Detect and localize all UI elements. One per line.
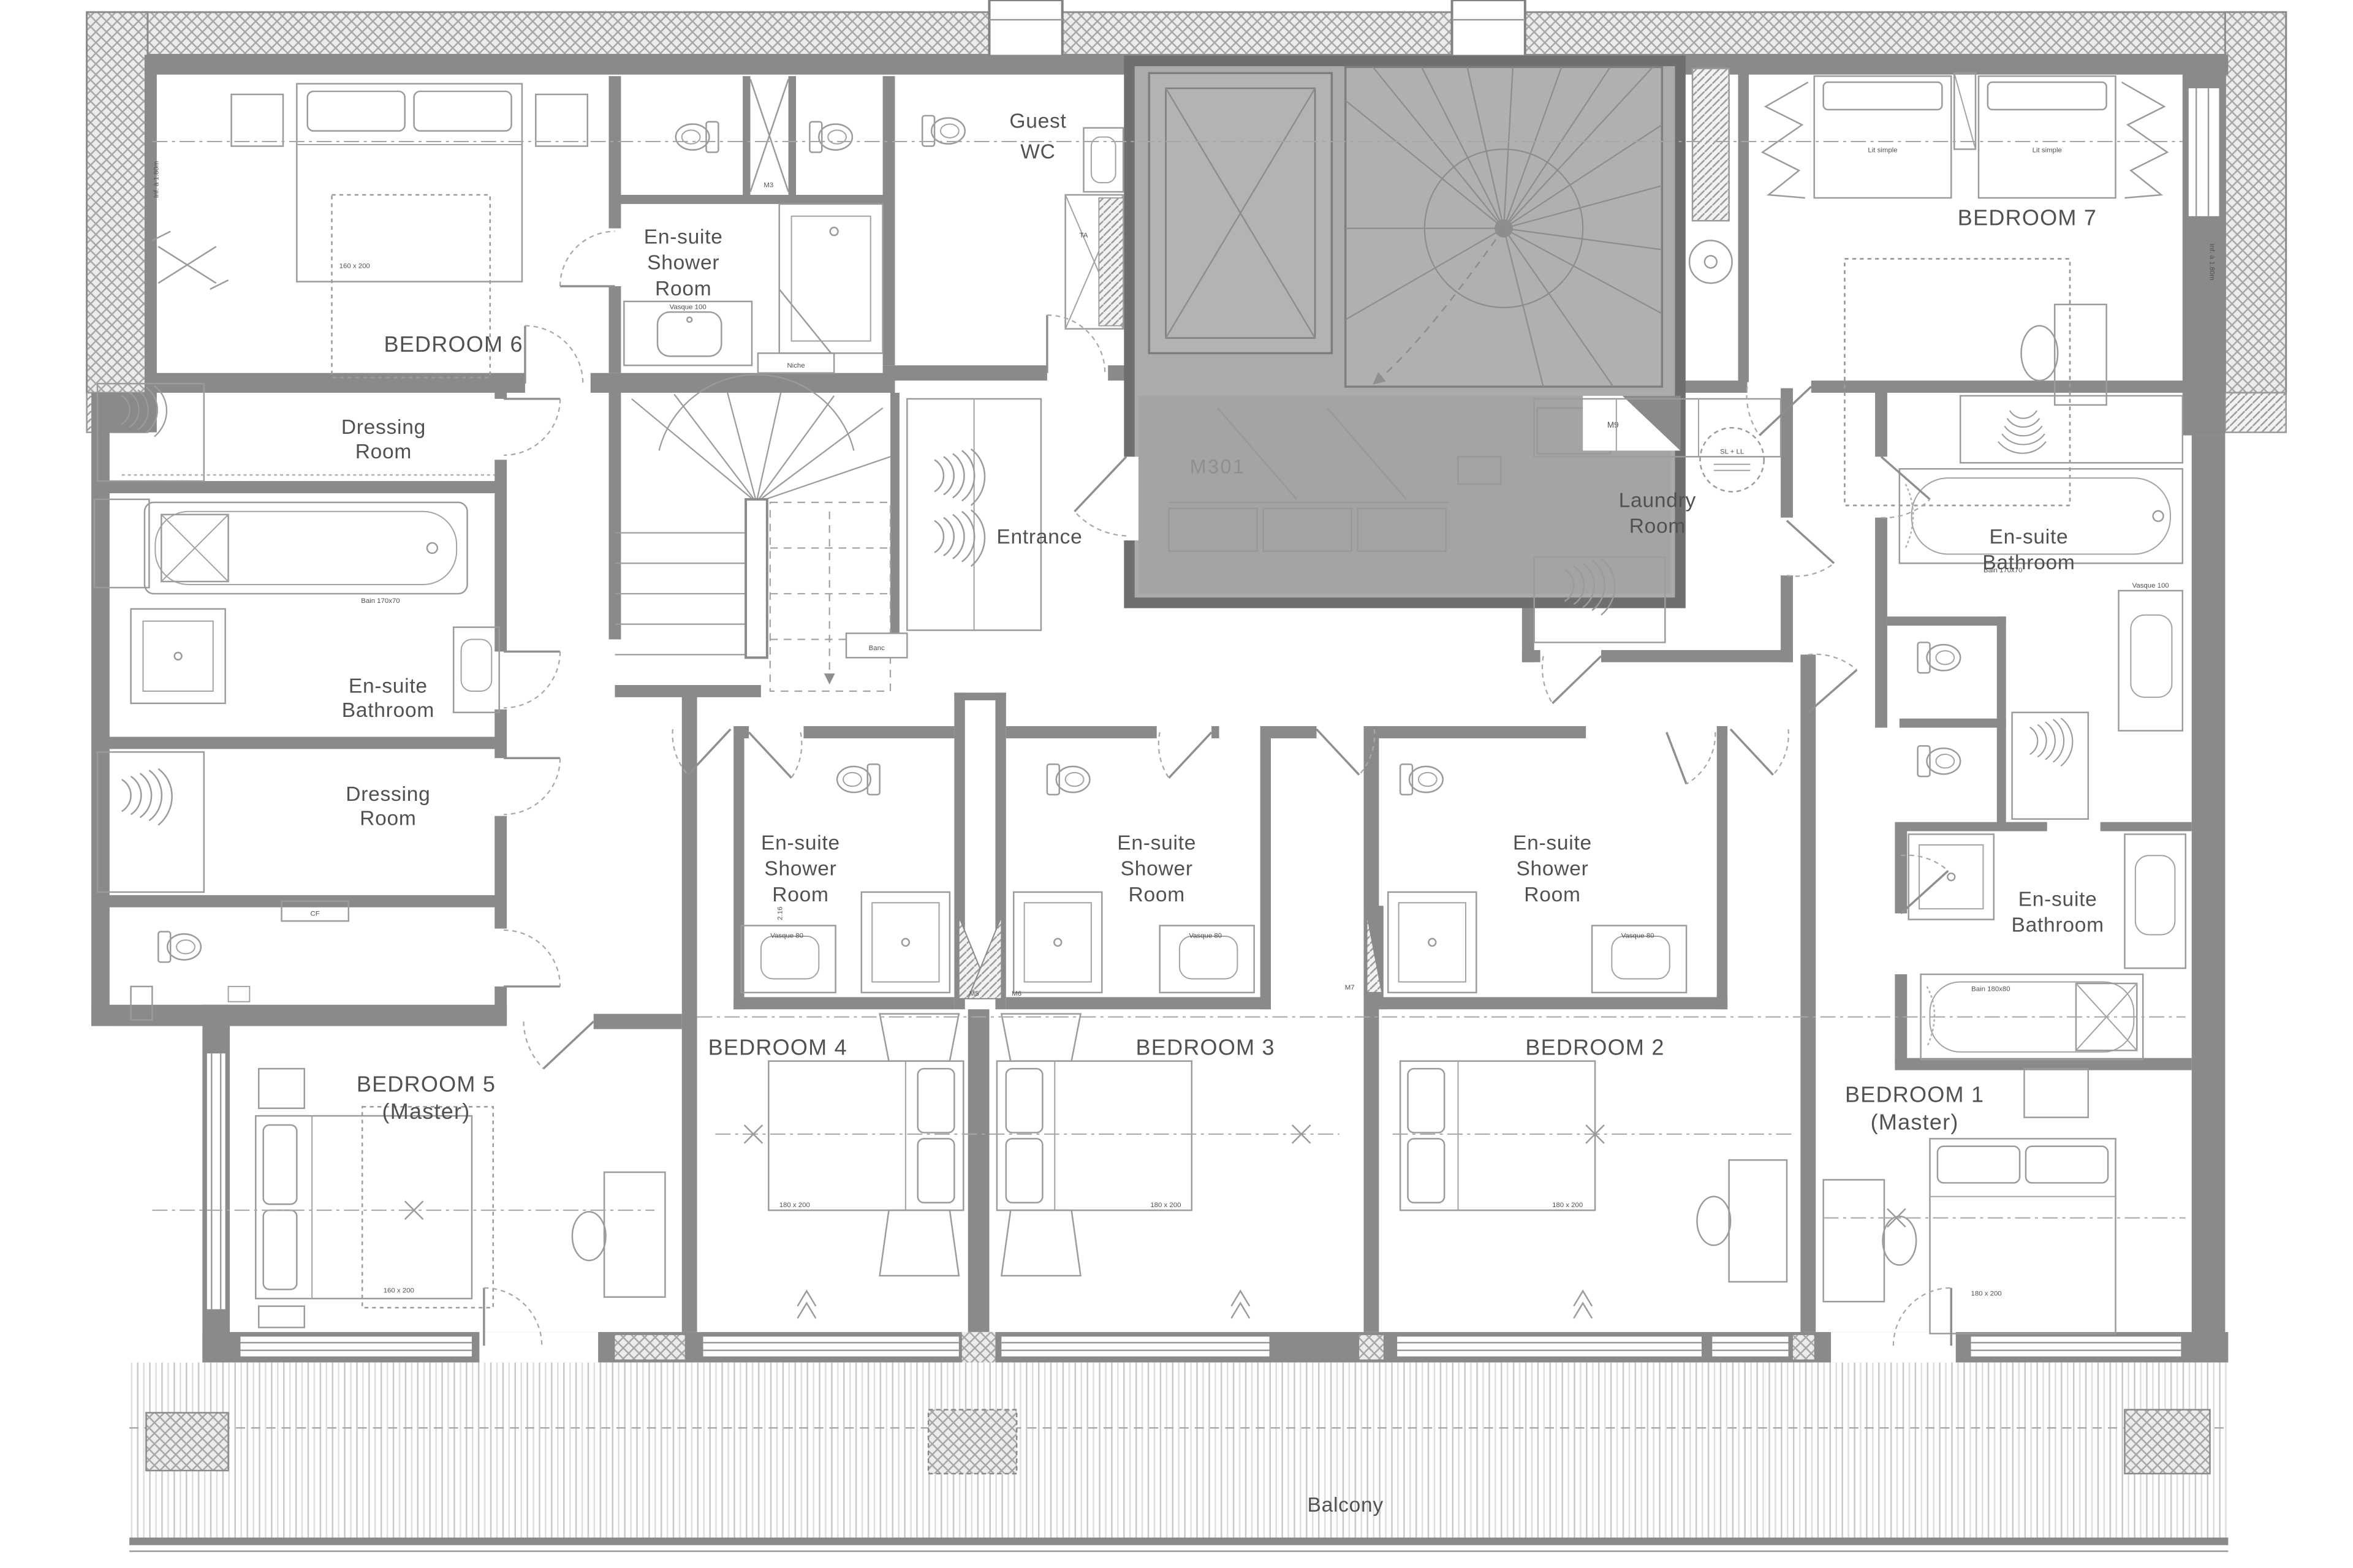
- lit-simple-right: Lit simple: [2033, 146, 2062, 154]
- label-shower3-3: Room: [1129, 884, 1185, 906]
- washer-dryer-label: SL + LL: [1720, 448, 1744, 455]
- pier-hatch: [615, 1335, 684, 1360]
- niche-label: Niche: [787, 362, 805, 369]
- label-bath7-1: En-suite: [1989, 526, 2068, 548]
- label-bedroom2: BEDROOM 2: [1525, 1035, 1664, 1060]
- floor-plan-page: M301 M9: [0, 0, 2353, 1568]
- m7-label: M7: [1345, 984, 1355, 991]
- roof-hatch-right: [2225, 12, 2286, 393]
- vasque80-label-3: Vasque 80: [1621, 932, 1654, 939]
- label-shower4-2: Shower: [764, 858, 836, 881]
- label-bedroom6: BEDROOM 6: [384, 331, 523, 357]
- bed4-size: 180 x 200: [779, 1202, 810, 1209]
- label-guestwc-2: WC: [1020, 140, 1055, 163]
- bedroom1-furniture: 180 x 200: [1824, 1069, 2186, 1333]
- balcony-post-hatch: [928, 1410, 1017, 1474]
- label-dressing6-1: Dressing: [341, 416, 426, 439]
- bain180-label: Bain 180x80: [1971, 985, 2010, 993]
- label-shower4-3: Room: [772, 884, 828, 906]
- label-entrance: Entrance: [996, 526, 1082, 548]
- bed5-size: 160 x 200: [384, 1287, 414, 1294]
- roof-hatch-top: [87, 12, 2286, 55]
- bath1-fixtures: Bain 180x80: [1909, 834, 2186, 1059]
- label-dressing5-2: Room: [360, 808, 416, 830]
- bedroom7-furniture: Lit simple Lit simple: [1762, 73, 2167, 506]
- balcony-deck: [129, 1363, 2228, 1542]
- balcony-railing: [129, 1537, 2228, 1545]
- pier-hatch: [1793, 1335, 1814, 1360]
- label-bedroom7: BEDROOM 7: [1958, 205, 2097, 230]
- vasque100-label: Vasque 100: [670, 303, 707, 311]
- bench-label: Banc: [869, 645, 885, 652]
- window-arrows: [798, 1291, 1593, 1319]
- label-shower2-2: Shower: [1516, 858, 1588, 881]
- lit-simple-left: Lit simple: [1868, 146, 1897, 154]
- label-shower2-1: En-suite: [1513, 831, 1592, 854]
- vasque100-label-2: Vasque 100: [2132, 582, 2169, 589]
- balcony-post-hatch: [2124, 1410, 2210, 1474]
- label-laundry-1: Laundry: [1619, 489, 1696, 512]
- elevator: [1149, 73, 1332, 353]
- label-balcony: Balcony: [1307, 1494, 1383, 1517]
- label-bath56-1: En-suite: [349, 675, 428, 697]
- label-shower6-1: En-suite: [644, 226, 723, 249]
- label-bedroom1-2: (Master): [1871, 1109, 1959, 1134]
- label-dressing5-1: Dressing: [346, 783, 430, 806]
- label-dressing6-2: Room: [355, 441, 412, 463]
- bed3-size: 180 x 200: [1150, 1202, 1181, 1209]
- coat-closet: [907, 399, 1041, 631]
- m5-label: M5: [969, 990, 979, 998]
- cf-label: CF: [311, 910, 320, 917]
- balcony-post-hatch: [146, 1413, 228, 1471]
- eave-step-right: [2225, 393, 2286, 433]
- pier-hatch-center: [962, 1332, 996, 1363]
- label-shower6-3: Room: [655, 278, 711, 300]
- bed1-size: 180 x 200: [1971, 1290, 2002, 1297]
- window-bed7-right: [2189, 88, 2219, 216]
- vasque80-label: Vasque 80: [770, 932, 803, 939]
- m6-label: M6: [1012, 990, 1021, 998]
- bedroom2-furniture: 180 x 200: [1393, 1061, 1793, 1282]
- label-shower2-3: Room: [1524, 884, 1580, 906]
- label-laundry-2: Room: [1629, 515, 1686, 538]
- spiral-stair: [1346, 67, 1662, 387]
- bain-label: Bain 170x70: [361, 597, 400, 605]
- core-unit-label: M301: [1190, 456, 1246, 478]
- window-bed5-left: [207, 1053, 225, 1309]
- label-bath1-2: Bathroom: [2012, 914, 2104, 936]
- shaft-strip: [1689, 69, 1732, 283]
- dressing6-fixtures: [97, 384, 494, 481]
- roof-hatch-left: [87, 12, 148, 393]
- label-guestwc-1: Guest: [1009, 110, 1066, 133]
- label-bedroom5-1: BEDROOM 5: [357, 1071, 496, 1096]
- headroom-left: Inf. à 1.80m: [153, 161, 160, 198]
- pier-hatch: [1359, 1335, 1384, 1360]
- label-bath7-2: Bathroom: [1982, 551, 2075, 574]
- skylight-left: [989, 0, 1062, 61]
- dim-216: 2.16: [777, 907, 784, 920]
- m3-label: M3: [763, 182, 773, 189]
- balcony: [129, 1332, 2228, 1551]
- ta-label: TA: [1080, 232, 1088, 240]
- label-shower3-2: Shower: [1121, 858, 1193, 881]
- skylight-right: [1452, 0, 1525, 61]
- label-bedroom3: BEDROOM 3: [1136, 1035, 1275, 1060]
- label-bath56-2: Bathroom: [342, 699, 434, 722]
- label-bedroom1-1: BEDROOM 1: [1845, 1082, 1984, 1107]
- label-bedroom5-2: (Master): [382, 1099, 470, 1124]
- ensuite-bath56-fixtures: Bain 170x70: [94, 499, 499, 713]
- door-gap-bed1-balcony: [1831, 1332, 1956, 1363]
- label-bath1-1: En-suite: [2018, 888, 2097, 911]
- bed2-size: 180 x 200: [1552, 1202, 1583, 1209]
- vasque80-label-2: Vasque 80: [1189, 932, 1222, 939]
- door-gap-bed5-balcony: [479, 1332, 598, 1363]
- label-shower3-1: En-suite: [1117, 831, 1196, 854]
- label-shower6-2: Shower: [647, 252, 719, 275]
- headroom-right: Inf. à 1.80m: [2208, 244, 2216, 281]
- bed6-size: 160 x 200: [339, 262, 370, 270]
- main-staircase: Banc: [615, 374, 907, 691]
- floor-plan-drawing: M301 M9: [0, 0, 2353, 1568]
- label-shower4-1: En-suite: [761, 831, 840, 854]
- label-bedroom4: BEDROOM 4: [708, 1035, 847, 1060]
